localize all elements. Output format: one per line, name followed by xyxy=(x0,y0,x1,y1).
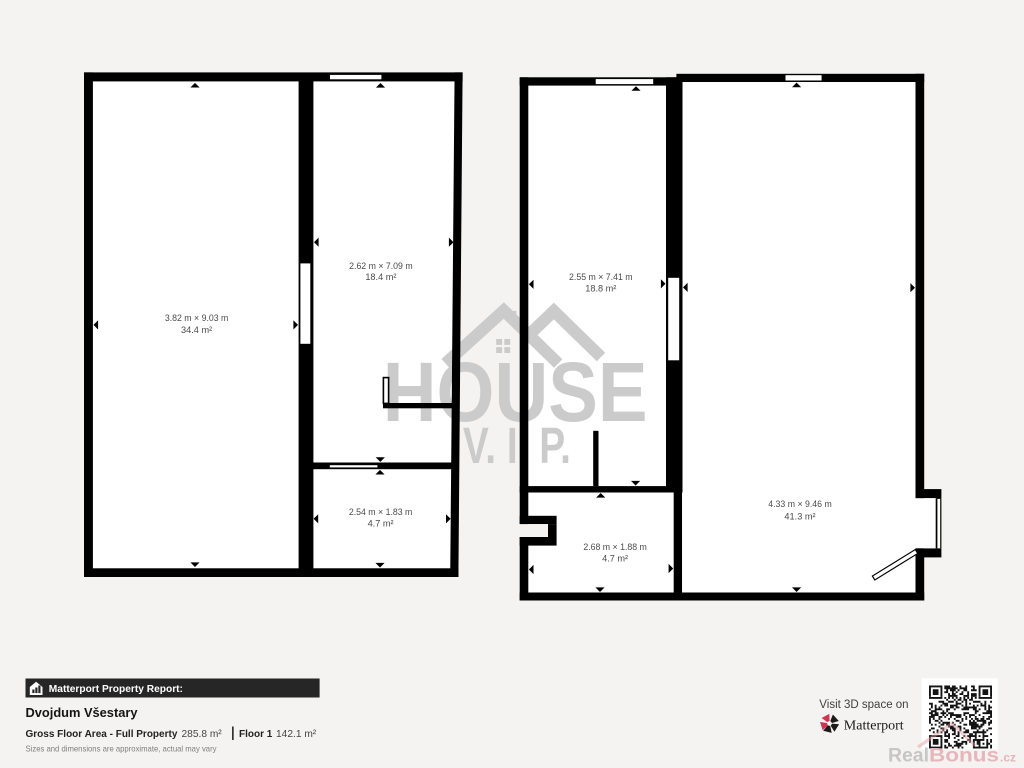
svg-text:4.33 m × 9.46 m: 4.33 m × 9.46 m xyxy=(768,499,832,509)
svg-text:Dvojdum Všestary: Dvojdum Všestary xyxy=(26,705,139,720)
svg-text:Real: Real xyxy=(888,745,929,767)
svg-text:4.7 m²: 4.7 m² xyxy=(368,519,394,529)
svg-text:2.54 m × 1.83 m: 2.54 m × 1.83 m xyxy=(349,507,413,517)
svg-text:3.82 m × 9.03 m: 3.82 m × 9.03 m xyxy=(165,313,229,323)
svg-text:34.4 m²: 34.4 m² xyxy=(181,325,212,335)
svg-text:18.8 m²: 18.8 m² xyxy=(585,284,616,294)
svg-text:285.8 m²: 285.8 m² xyxy=(182,729,223,740)
svg-text:4.7 m²: 4.7 m² xyxy=(602,554,628,564)
svg-text:142.1 m²: 142.1 m² xyxy=(276,729,317,740)
svg-text:Visit 3D space on: Visit 3D space on xyxy=(819,699,908,711)
svg-text:Sizes and dimensions are appro: Sizes and dimensions are approximate, ac… xyxy=(26,745,218,754)
svg-text:Gross Floor Area - Full Proper: Gross Floor Area - Full Property xyxy=(26,729,178,740)
svg-text:2.68 m × 1.88 m: 2.68 m × 1.88 m xyxy=(583,542,647,552)
svg-text:Bonus: Bonus xyxy=(929,745,999,767)
svg-text:Matterport Property Report:: Matterport Property Report: xyxy=(49,684,183,695)
svg-text:2.62 m × 7.09 m: 2.62 m × 7.09 m xyxy=(349,261,413,271)
svg-text:2.55 m × 7.41 m: 2.55 m × 7.41 m xyxy=(569,272,633,282)
svg-text:Floor 1: Floor 1 xyxy=(239,729,273,740)
svg-text:41.3 m²: 41.3 m² xyxy=(784,511,815,521)
svg-text:.cz: .cz xyxy=(1000,751,1016,765)
svg-text:V. I. P.: V. I. P. xyxy=(463,417,571,474)
svg-text:18.4 m²: 18.4 m² xyxy=(365,272,396,282)
svg-text:Matterport: Matterport xyxy=(844,718,904,733)
